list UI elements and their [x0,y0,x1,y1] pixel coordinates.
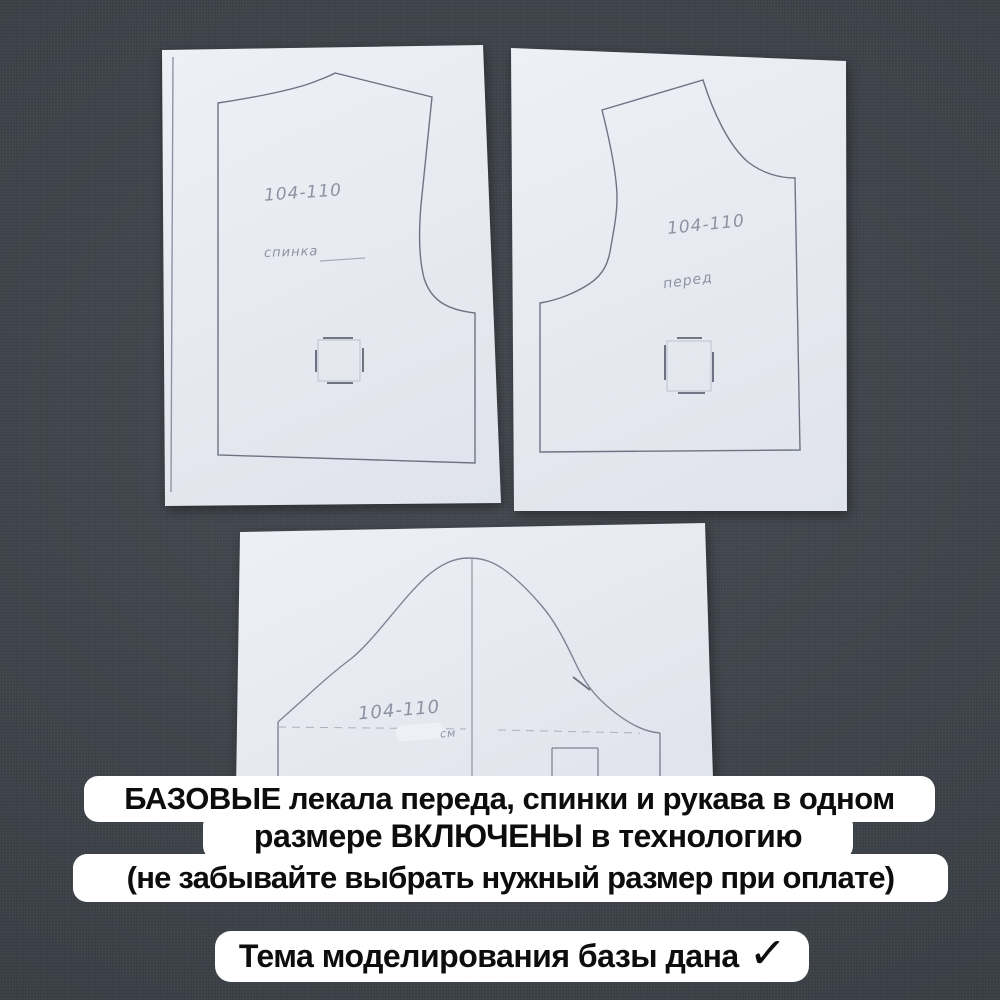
caption-line-3: (не забывайте выбрать нужный размер при … [73,854,948,902]
pattern-sheet-back: 104-110 спинка [160,45,502,507]
photo-canvas: 104-110 спинка 104-110 перед [0,0,1000,1000]
pattern-sheet-back-paper: 104-110 спинка [160,45,502,507]
pattern-sheet-sleeve: 104-110 см [236,520,714,790]
back-pattern-drawing [160,45,502,507]
pattern-sheet-sleeve-paper: 104-110 см [236,520,714,790]
pattern-sheet-front: 104-110 перед [507,45,849,513]
sleeve-unit-label: см [440,726,457,740]
caption-line-1: БАЗОВЫЕ лекала переда, спинки и рукава в… [84,776,935,822]
pattern-sheet-front-paper: 104-110 перед [507,45,849,513]
sleeve-pattern-drawing [236,520,714,790]
footer-badge: Тема моделирования базы дана ✓ [215,931,809,982]
footer-text: Тема моделирования базы дана [239,938,739,975]
back-name-label: спинка [264,244,319,261]
check-icon: ✓ [747,930,786,976]
